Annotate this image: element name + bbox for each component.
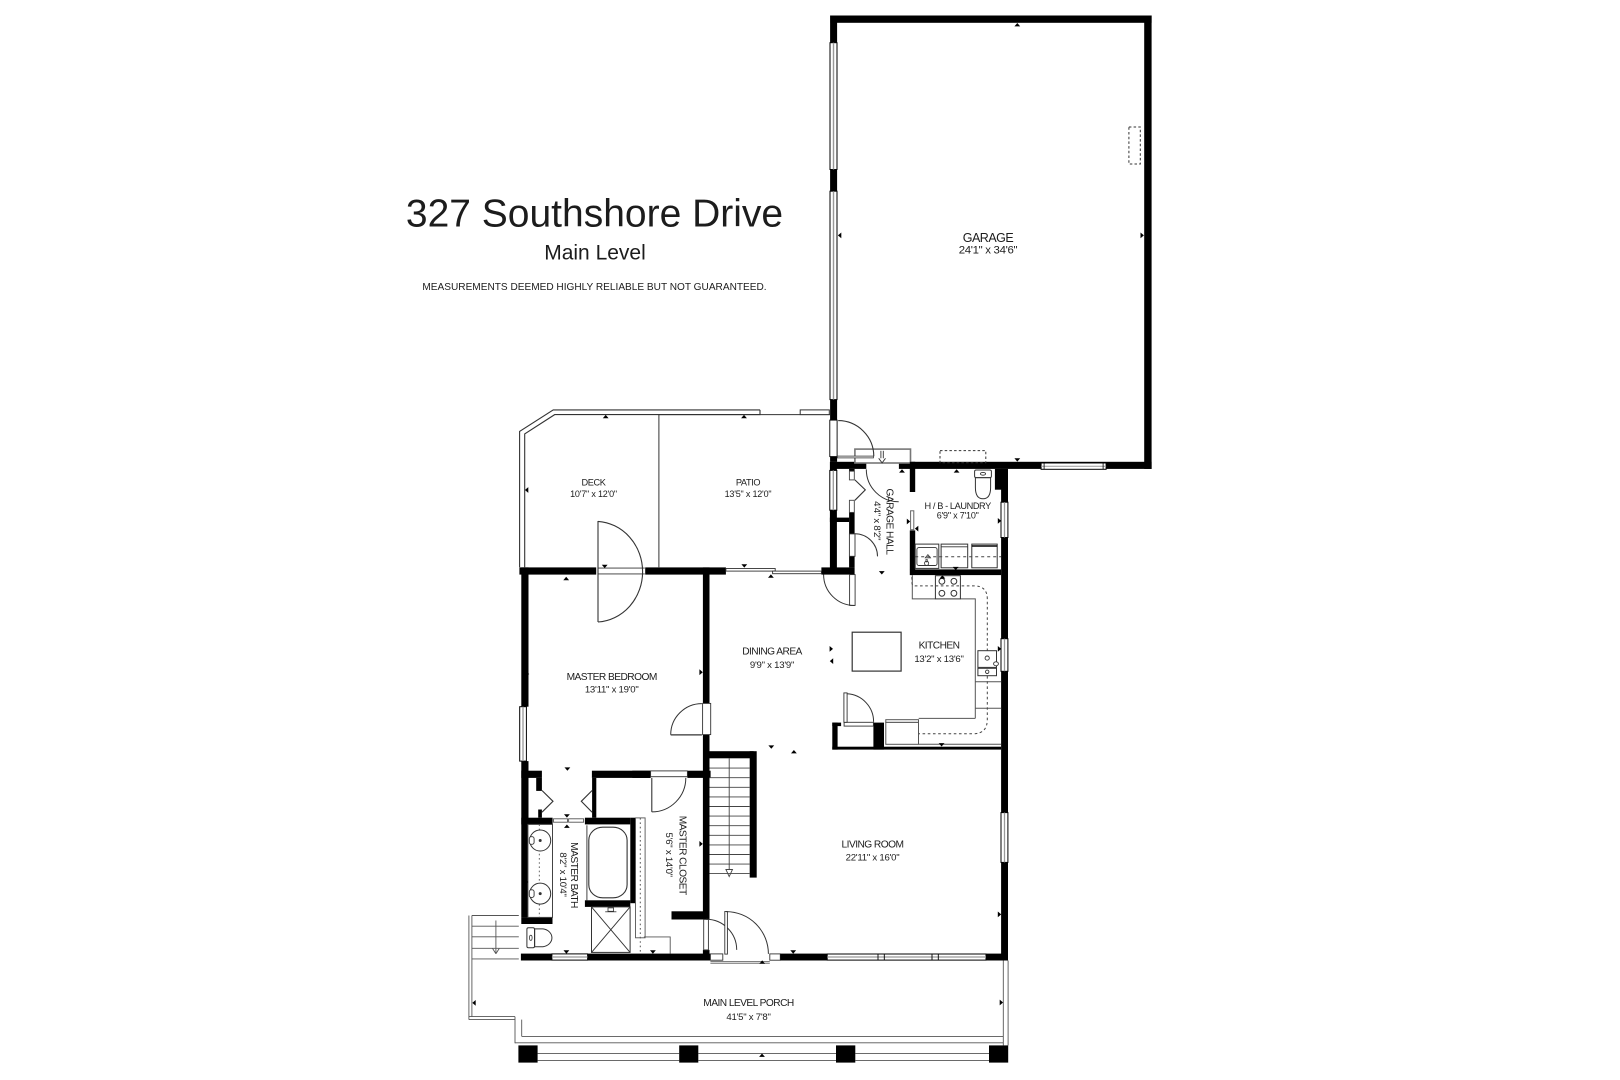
svg-text:GARAGE: GARAGE	[963, 231, 1014, 245]
svg-text:MAIN LEVEL PORCH: MAIN LEVEL PORCH	[703, 998, 794, 1009]
svg-text:22'11" x 16'0": 22'11" x 16'0"	[846, 853, 900, 864]
svg-text:41'5" x 7'8": 41'5" x 7'8"	[726, 1012, 770, 1023]
svg-text:13'11" x 19'0": 13'11" x 19'0"	[585, 685, 639, 696]
svg-text:13'2" x 13'6": 13'2" x 13'6"	[914, 654, 963, 665]
svg-text:6'9" x 7'10": 6'9" x 7'10"	[937, 511, 979, 521]
svg-text:327 Southshore Drive: 327 Southshore Drive	[406, 193, 783, 236]
svg-text:4'4" x 8'2": 4'4" x 8'2"	[871, 501, 882, 540]
svg-text:13'5" x 12'0": 13'5" x 12'0"	[725, 489, 772, 499]
svg-text:H / B - LAUNDRY: H / B - LAUNDRY	[925, 501, 992, 511]
svg-text:Main Level: Main Level	[544, 242, 646, 265]
svg-text:9'9" x 13'9": 9'9" x 13'9"	[750, 660, 794, 671]
svg-text:MASTER BEDROOM: MASTER BEDROOM	[567, 672, 657, 683]
svg-text:KITCHEN: KITCHEN	[919, 641, 960, 652]
svg-text:LIVING ROOM: LIVING ROOM	[842, 840, 904, 851]
svg-text:MASTER BATH: MASTER BATH	[568, 842, 579, 908]
svg-text:24'1" x 34'6": 24'1" x 34'6"	[959, 245, 1018, 257]
svg-text:GARAGE HALL: GARAGE HALL	[883, 488, 894, 555]
svg-text:MASTER CLOSET: MASTER CLOSET	[676, 816, 687, 895]
svg-text:5'6" x 14'0": 5'6" x 14'0"	[663, 833, 674, 877]
svg-text:PATIO: PATIO	[736, 478, 760, 488]
svg-text:8'2" x 10'4": 8'2" x 10'4"	[557, 852, 568, 896]
svg-text:10'7" x 12'0": 10'7" x 12'0"	[570, 489, 617, 499]
svg-text:DINING AREA: DINING AREA	[742, 647, 802, 658]
svg-text:MEASUREMENTS DEEMED HIGHLY REL: MEASUREMENTS DEEMED HIGHLY RELIABLE BUT …	[422, 282, 766, 293]
svg-text:DECK: DECK	[582, 478, 607, 488]
